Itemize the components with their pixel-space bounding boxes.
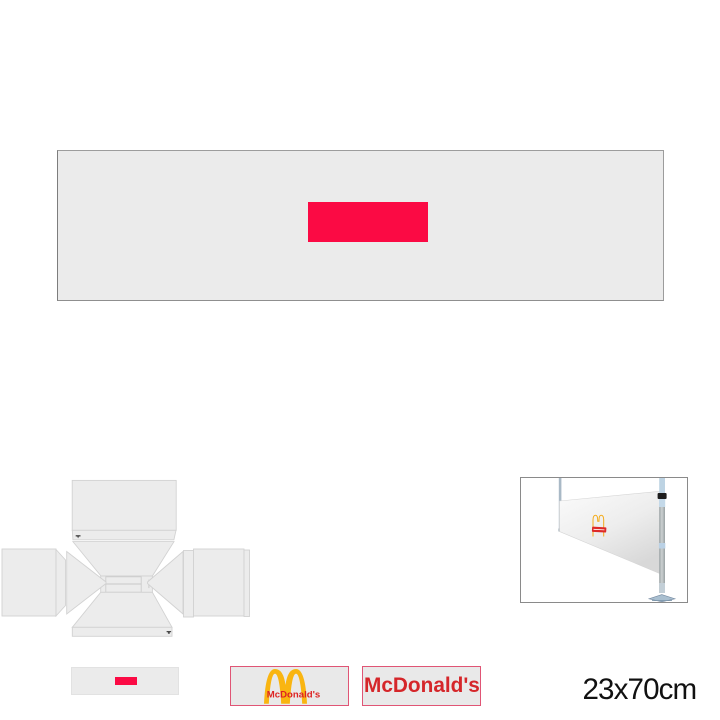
svg-text:McDonald's: McDonald's: [267, 689, 320, 700]
